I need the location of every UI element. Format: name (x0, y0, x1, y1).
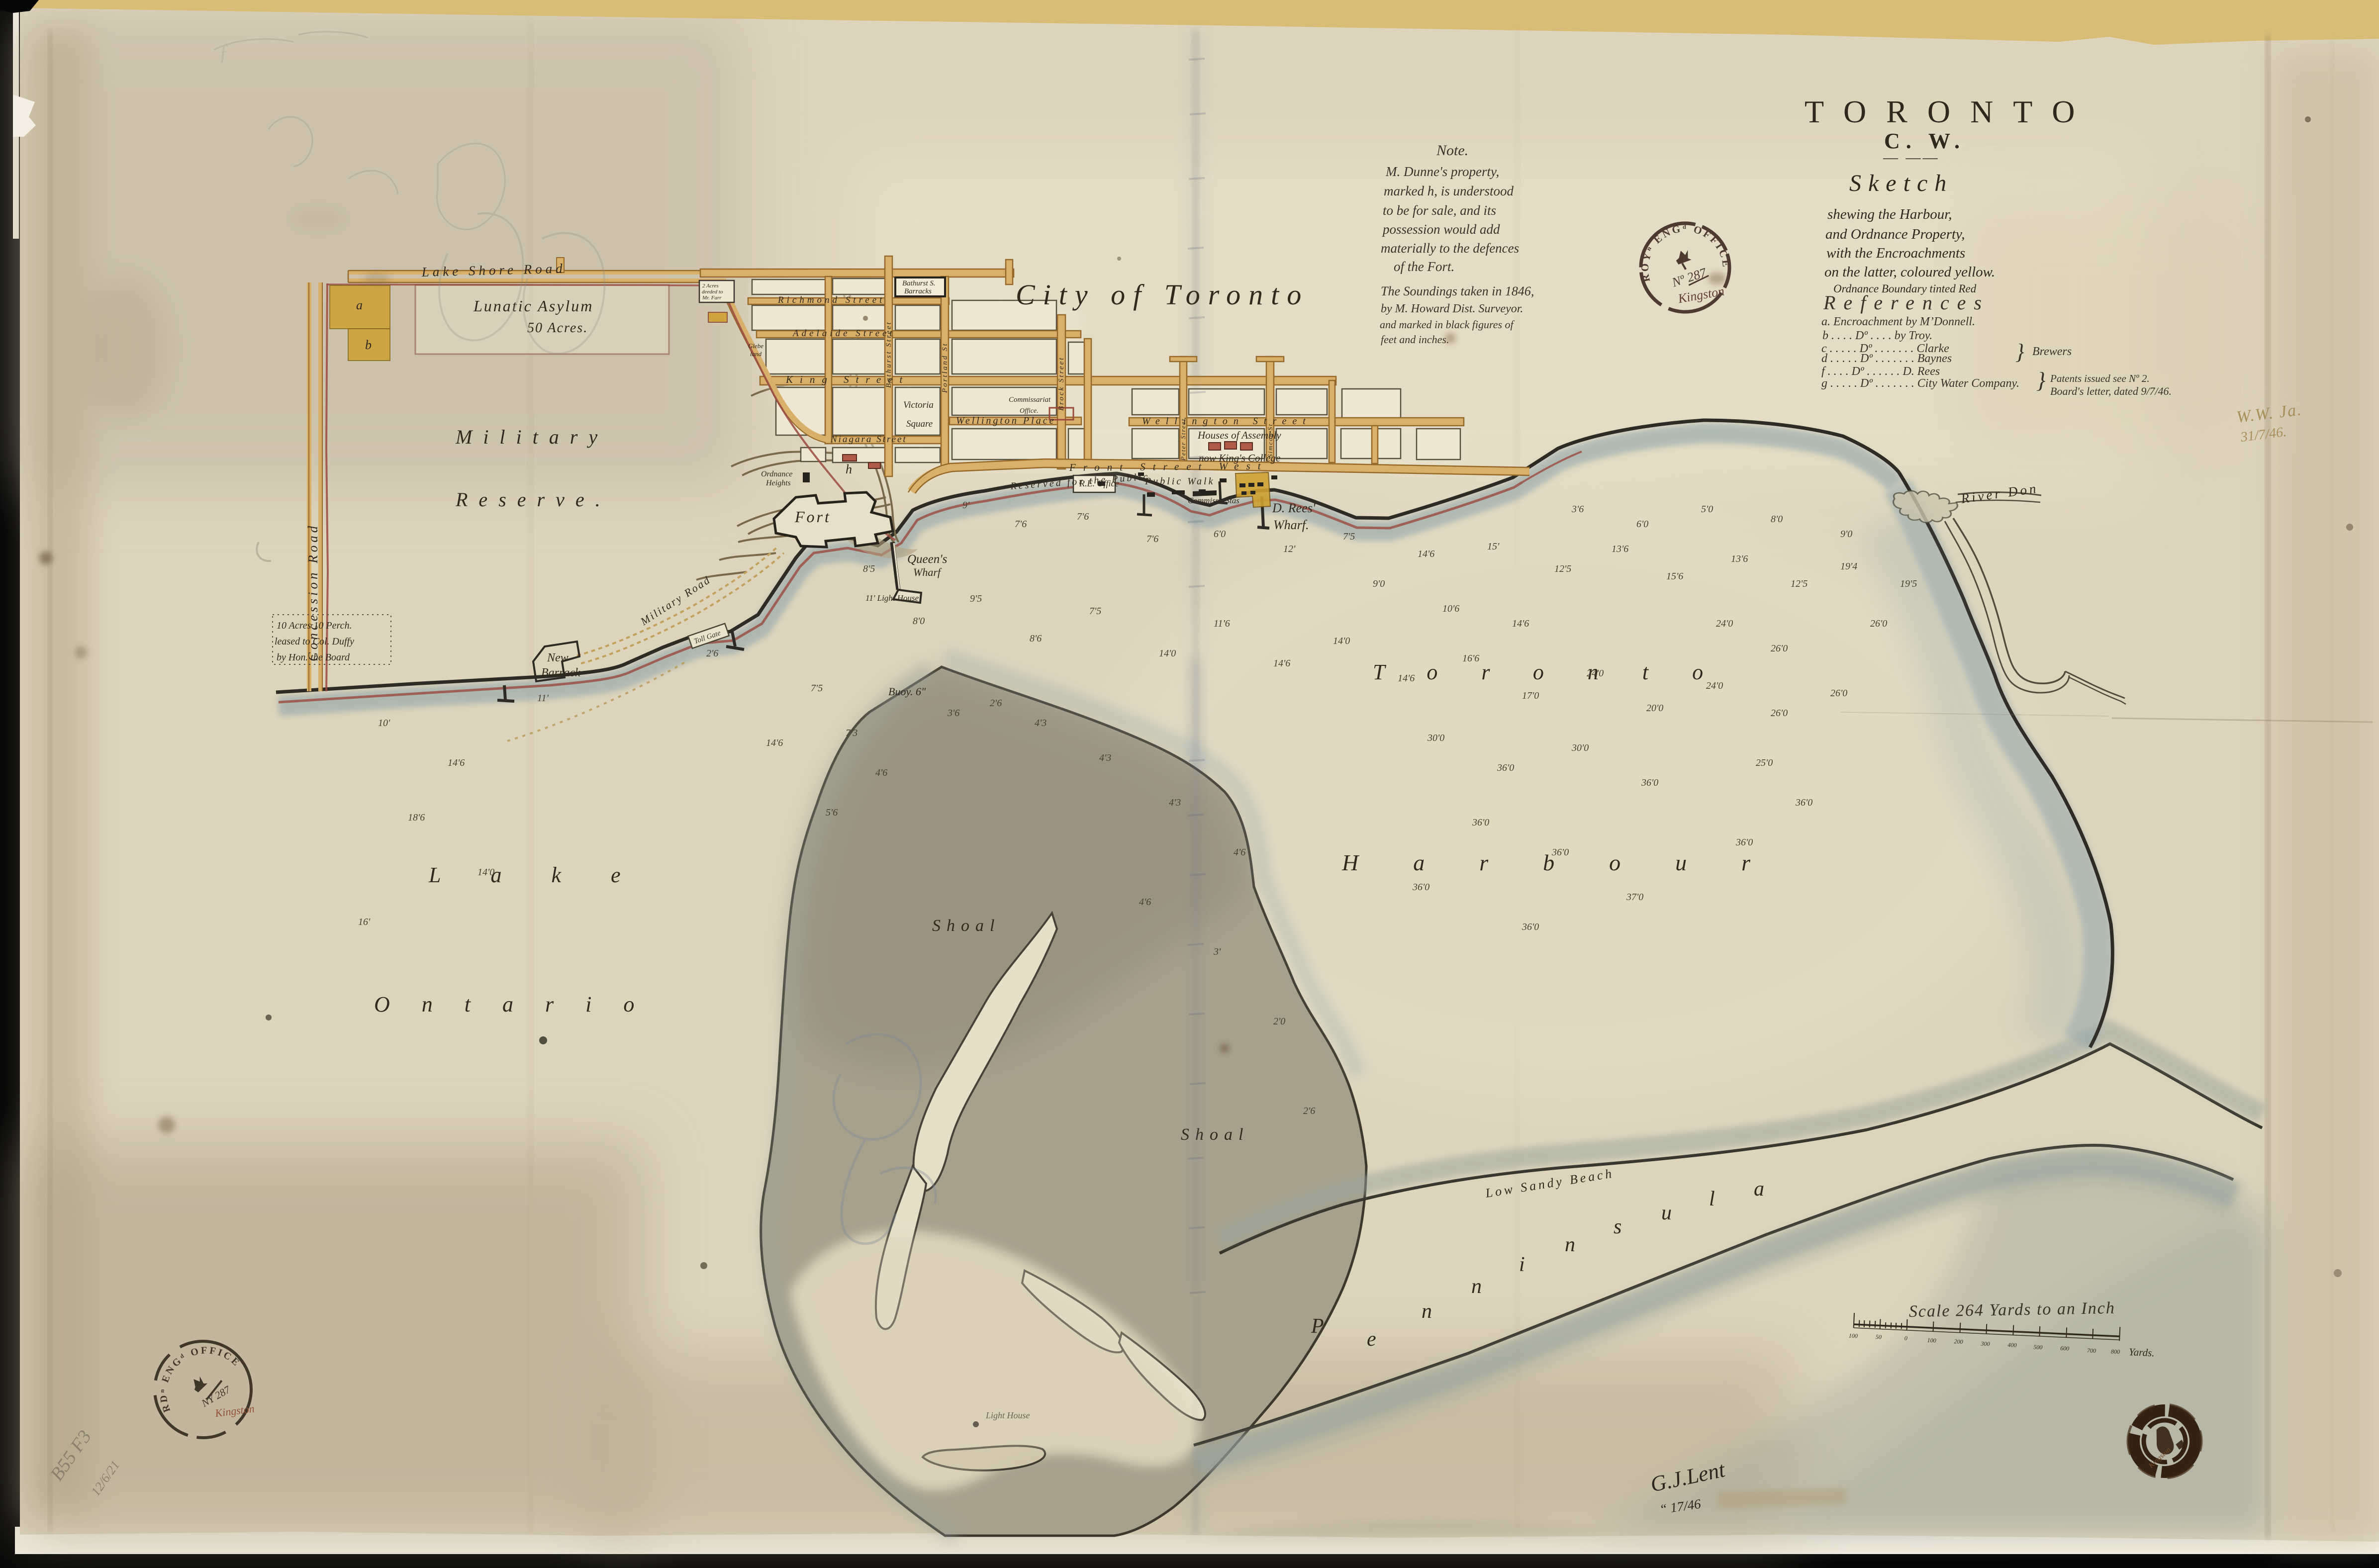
svg-text:15': 15' (1487, 541, 1500, 552)
svg-text:Reserve.: Reserve. (455, 488, 611, 511)
svg-text:36'0: 36'0 (1735, 837, 1753, 848)
svg-text:a: a (356, 298, 363, 312)
svg-text:Richmond Street: Richmond Street (777, 295, 885, 305)
svg-text:26'0: 26'0 (1830, 688, 1847, 699)
svg-text:l: l (1709, 1188, 1715, 1210)
svg-text:9'5: 9'5 (970, 593, 982, 604)
svg-text:n: n (1565, 1233, 1575, 1256)
svg-text:Commissariat: Commissariat (1009, 396, 1051, 404)
svg-text:16'6: 16'6 (1462, 653, 1479, 664)
svg-text:Toronto: Toronto (1373, 660, 1747, 684)
svg-text:Adelaide Street: Adelaide Street (792, 328, 895, 339)
svg-text:4'3: 4'3 (1035, 718, 1047, 729)
svg-text:6'0: 6'0 (1214, 529, 1226, 540)
svg-text:4'6: 4'6 (1139, 897, 1151, 908)
svg-text:30'0: 30'0 (1571, 742, 1589, 753)
svg-text:— ——: — —— (1883, 149, 1940, 166)
svg-text:The Soundings taken in 1846,: The Soundings taken in 1846, (1381, 284, 1534, 298)
svg-text:u: u (1661, 1201, 1672, 1224)
svg-text:Public Walk: Public Walk (1144, 476, 1215, 487)
svg-text:14'6: 14'6 (448, 757, 465, 768)
svg-text:36'0: 36'0 (1472, 817, 1489, 828)
svg-text:M. Dunne's property,: M. Dunne's property, (1385, 164, 1499, 179)
svg-text:14'6: 14'6 (766, 738, 783, 748)
svg-text:15'6: 15'6 (1666, 571, 1683, 582)
svg-text:700: 700 (2087, 1347, 2096, 1354)
svg-text:e: e (1367, 1328, 1376, 1351)
svg-text:500: 500 (2033, 1343, 2043, 1351)
svg-text:Lake: Lake (428, 863, 670, 887)
svg-text:Bathurst S.: Bathurst S. (902, 279, 936, 287)
svg-text:14'6: 14'6 (1512, 618, 1529, 629)
svg-text:Glebe: Glebe (748, 342, 763, 350)
svg-text:36'0: 36'0 (1641, 777, 1658, 788)
svg-text:36'0: 36'0 (1551, 847, 1569, 858)
svg-text:400: 400 (2007, 1341, 2017, 1349)
svg-text:20'0: 20'0 (1646, 703, 1663, 714)
svg-text:shewing the Harbour,: shewing the Harbour, (1827, 206, 1952, 222)
svg-text:g . . . . . Dº . . . . . . .: g . . . . . Dº . . . . . . . City Water … (1821, 377, 2019, 390)
svg-text:5'0: 5'0 (1701, 504, 1713, 515)
svg-text:12'5: 12'5 (1791, 578, 1808, 589)
svg-text:12': 12' (1283, 544, 1296, 554)
svg-text:11': 11' (537, 693, 549, 704)
svg-text:Note.: Note. (1436, 142, 1468, 159)
svg-text:300: 300 (1980, 1340, 1990, 1348)
svg-text:14'6: 14'6 (1273, 658, 1290, 669)
svg-text:17'0: 17'0 (1522, 690, 1539, 701)
svg-text:36'0: 36'0 (1412, 882, 1429, 893)
svg-text:7'6: 7'6 (1146, 534, 1158, 545)
svg-text:n: n (1471, 1275, 1482, 1298)
svg-text:}: } (2036, 368, 2045, 393)
svg-text:Square: Square (906, 419, 933, 429)
svg-text:14'0: 14'0 (1159, 648, 1176, 659)
svg-text:by Hon. the Board: by Hon. the Board (277, 652, 350, 663)
svg-text:materially to the defences: materially to the defences (1381, 241, 1519, 256)
svg-text:Patents issued see Nº 2.: Patents issued see Nº 2. (2050, 372, 2150, 384)
svg-text:12'5: 12'5 (1554, 563, 1571, 574)
svg-text:14'6: 14'6 (1418, 549, 1434, 559)
svg-text:8'0: 8'0 (1771, 514, 1783, 525)
svg-text:to be for sale, and its: to be for sale, and its (1383, 203, 1496, 218)
svg-text:37'0: 37'0 (1626, 892, 1643, 903)
svg-text:18'6: 18'6 (408, 812, 425, 823)
svg-text:i: i (1519, 1253, 1525, 1276)
svg-text:19'4: 19'4 (1840, 561, 1857, 572)
svg-text:100: 100 (1849, 1332, 1858, 1340)
svg-text:Niagara Street: Niagara Street (830, 434, 907, 445)
svg-text:11'6: 11'6 (1214, 618, 1230, 629)
svg-text:3'6: 3'6 (1571, 504, 1584, 515)
svg-text:4'6: 4'6 (875, 767, 887, 778)
svg-text:Ontario: Ontario (374, 992, 666, 1016)
svg-text:a: a (1754, 1178, 1764, 1200)
svg-text:8'0: 8'0 (913, 616, 925, 627)
svg-text:14'0: 14'0 (1333, 636, 1350, 646)
svg-text:5'6: 5'6 (826, 807, 838, 818)
svg-text:6'0: 6'0 (1636, 519, 1648, 530)
svg-text:h: h (846, 462, 852, 476)
svg-text:26'0: 26'0 (1771, 708, 1788, 719)
svg-text:Board's letter, dated 9/7/46.: Board's letter, dated 9/7/46. (2050, 385, 2172, 397)
svg-text:Wellington Street: Wellington Street (1142, 416, 1312, 427)
svg-text:2'6: 2'6 (990, 698, 1002, 709)
svg-text:9'0: 9'0 (1840, 529, 1852, 540)
svg-text:with the Encroachments: with the Encroachments (1826, 245, 1965, 261)
svg-text:b . . . . Dº . . . . by T: b . . . . Dº . . . . by Troy. (1822, 329, 1932, 342)
svg-text:deeded to: deeded to (702, 289, 723, 295)
svg-text:25'0: 25'0 (1756, 757, 1773, 768)
svg-text:D. Rees': D. Rees' (1272, 501, 1316, 515)
svg-text:n: n (1422, 1300, 1432, 1323)
svg-text:Barrack: Barrack (541, 666, 580, 679)
svg-text:Mr. Farr: Mr. Farr (702, 295, 722, 301)
svg-text:10': 10' (378, 718, 390, 729)
svg-text:4'3: 4'3 (1169, 797, 1181, 808)
svg-text:30'0: 30'0 (1427, 733, 1444, 743)
svg-text:10'6: 10'6 (1442, 603, 1459, 614)
svg-text:7'3: 7'3 (846, 728, 857, 738)
svg-text:Victoria: Victoria (903, 400, 934, 410)
svg-text:0: 0 (1904, 1335, 1908, 1342)
svg-text:7'6: 7'6 (1015, 519, 1027, 530)
svg-text:2'0: 2'0 (1273, 1016, 1285, 1027)
svg-text:2 Acres: 2 Acres (702, 283, 719, 289)
svg-text:b: b (365, 338, 372, 352)
svg-text:9'0: 9'0 (1373, 578, 1385, 589)
svg-text:36'0: 36'0 (1522, 922, 1539, 932)
svg-text:References: References (1823, 291, 1990, 314)
svg-text:Bathurst Street: Bathurst Street (885, 321, 893, 388)
svg-text:19'5: 19'5 (1900, 578, 1917, 589)
svg-text:Heights: Heights (765, 479, 791, 487)
svg-text:24'0: 24'0 (1716, 618, 1733, 629)
svg-text:2'6: 2'6 (706, 648, 718, 659)
svg-text:Peter Street: Peter Street (1179, 418, 1187, 461)
svg-text:Scale 264 Yards to an Inch: Scale 264 Yards to an Inch (1909, 1299, 2116, 1321)
svg-text:Ordnance: Ordnance (761, 470, 792, 478)
svg-text:14'0: 14'0 (477, 867, 494, 878)
svg-text:Buoy. 6": Buoy. 6" (888, 685, 926, 698)
svg-text:8'5: 8'5 (863, 563, 875, 574)
svg-text:Wellington Place: Wellington Place (956, 415, 1055, 426)
svg-text:10 Acres 10 Perch.: 10 Acres 10 Perch. (277, 620, 352, 631)
svg-text:4'6: 4'6 (1234, 847, 1245, 858)
svg-text:Military: Military (455, 426, 608, 448)
svg-text:by M. Howard Dist. Surveyor.: by M. Howard Dist. Surveyor. (1381, 302, 1523, 315)
svg-text:f . . . . Dº . . . . . . D.: f . . . . Dº . . . . . . D. Rees (1821, 365, 1940, 378)
svg-text:11' Light House: 11' Light House (865, 593, 919, 603)
svg-text:Portland St: Portland St (941, 342, 949, 393)
svg-text:s: s (1614, 1215, 1621, 1238)
svg-text:9': 9' (962, 500, 970, 511)
svg-text:Lunatic Asylum: Lunatic Asylum (473, 297, 593, 315)
svg-text:Wharf.: Wharf. (1273, 518, 1309, 532)
svg-text:Wharf: Wharf (913, 566, 942, 578)
svg-text:feet and inches.: feet and inches. (1381, 333, 1449, 346)
svg-text:Sketch: Sketch (1849, 170, 1953, 196)
svg-text:26'0: 26'0 (1870, 618, 1887, 629)
svg-text:now King's College: now King's College (1199, 452, 1280, 464)
svg-text:a. Encroachment by MʼDon: a. Encroachment by MʼDonnell. (1821, 315, 1975, 328)
svg-text:of the Fort.: of the Fort. (1394, 259, 1454, 274)
svg-text:7'5: 7'5 (811, 683, 823, 694)
svg-text:marked h, is understood: marked h, is understood (1384, 184, 1514, 198)
svg-text:14'6: 14'6 (1398, 673, 1415, 684)
svg-text:3': 3' (1213, 946, 1221, 957)
svg-text:7'5: 7'5 (1089, 606, 1101, 617)
svg-text:and marked in black figures of: and marked in black figures of (1380, 318, 1515, 331)
svg-text:Brock Street: Brock Street (1057, 357, 1065, 411)
svg-text:24'0: 24'0 (1706, 680, 1723, 691)
svg-text:possession would add: possession would add (1382, 222, 1500, 237)
svg-text:800: 800 (2111, 1348, 2120, 1356)
svg-text:200: 200 (1954, 1338, 1963, 1345)
svg-text:R.E. Office: R.E. Office (1079, 478, 1119, 488)
svg-text:2'6: 2'6 (1303, 1106, 1315, 1116)
svg-text:13'6: 13'6 (1612, 544, 1628, 554)
svg-text:50 Acres.: 50 Acres. (527, 320, 588, 336)
svg-text:100: 100 (1927, 1337, 1936, 1344)
svg-text:4'3: 4'3 (1099, 752, 1111, 763)
svg-text:3'6: 3'6 (947, 708, 959, 719)
svg-text:}: } (2015, 340, 2024, 364)
svg-text:7'5: 7'5 (1343, 531, 1355, 542)
svg-text:d . . . . . Dº . . . . . . .: d . . . . . Dº . . . . . . . Baynes (1821, 352, 1952, 365)
svg-text:36'0: 36'0 (1497, 762, 1514, 773)
svg-text:Houses of Assembly: Houses of Assembly (1197, 429, 1281, 441)
svg-text:New: New (547, 651, 569, 664)
svg-text:36'0: 36'0 (1795, 797, 1812, 808)
svg-text:13'6: 13'6 (1731, 553, 1748, 564)
svg-text:24'0: 24'0 (1587, 668, 1604, 679)
svg-text:on the latter, coloured yellow: on the latter, coloured yellow. (1824, 264, 1995, 280)
svg-text:Office.: Office. (1020, 407, 1039, 415)
svg-text:Yards.: Yards. (2129, 1346, 2155, 1359)
svg-text:16': 16' (358, 917, 371, 927)
svg-text:7'6: 7'6 (1077, 511, 1089, 522)
svg-text:City of Toronto: City of Toronto (1016, 278, 1309, 311)
svg-text:leased to Col. Duffy: leased to Col. Duffy (275, 636, 354, 647)
svg-text:P: P (1311, 1315, 1324, 1338)
svg-text:26'0: 26'0 (1771, 643, 1788, 654)
svg-text:Brewers: Brewers (2032, 345, 2072, 358)
svg-text:TORONTO: TORONTO (1805, 94, 2094, 129)
svg-text:land: land (750, 350, 762, 358)
svg-text:8'6: 8'6 (1030, 633, 1042, 644)
svg-text:Queen's: Queen's (907, 553, 947, 566)
svg-text:600: 600 (2060, 1345, 2070, 1352)
svg-text:Harbour: Harbour (1341, 850, 1805, 875)
svg-text:Shoal: Shoal (932, 917, 1000, 935)
svg-text:50: 50 (1876, 1333, 1882, 1341)
svg-text:Barracks: Barracks (904, 287, 932, 295)
svg-text:Fort: Fort (794, 508, 831, 526)
svg-text:and Ordnance Property,: and Ordnance Property, (1825, 226, 1965, 242)
